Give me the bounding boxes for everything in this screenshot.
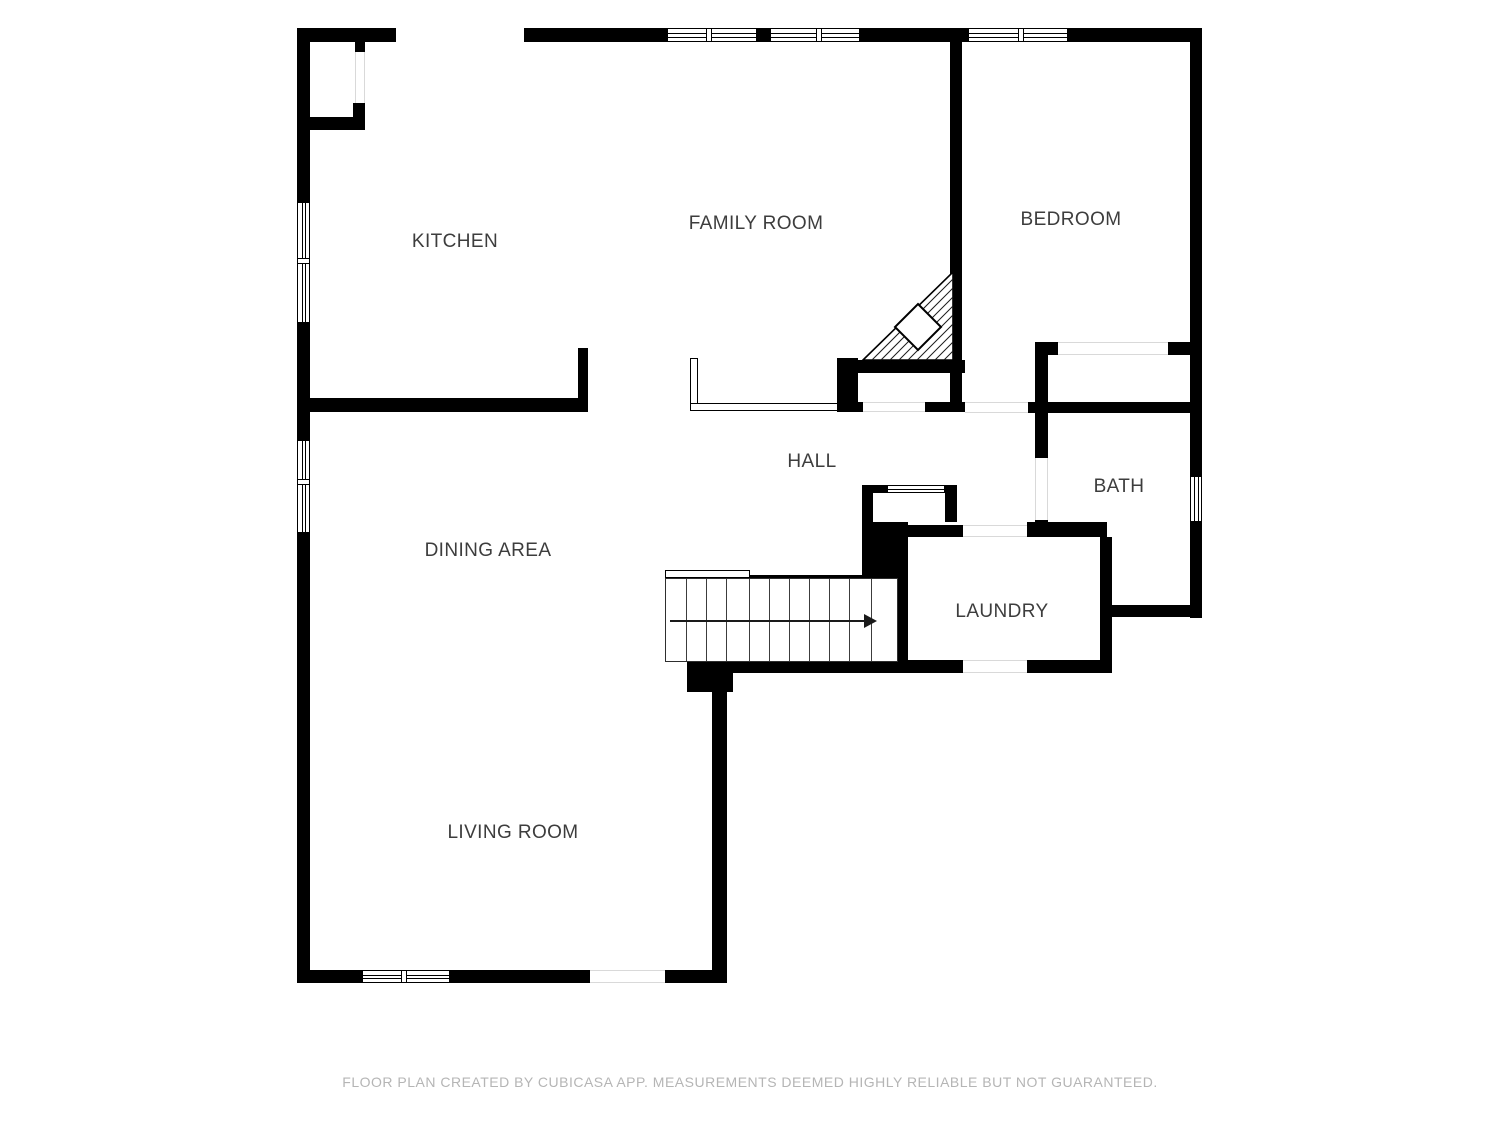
wall-segment	[297, 398, 588, 412]
wall-segment	[1028, 402, 1202, 413]
window	[297, 440, 310, 533]
wall-segment	[1027, 660, 1112, 673]
wall-segment	[353, 103, 365, 117]
window-pane-line	[305, 441, 306, 532]
wall-segment	[898, 537, 908, 662]
window	[770, 28, 860, 42]
window-pane-line	[668, 37, 756, 38]
floor-plan-canvas: KITCHENFAMILY ROOMBEDROOMHALLBATHDINING …	[0, 0, 1500, 1125]
wall-segment	[757, 28, 770, 42]
window-mullion	[706, 29, 712, 41]
door-opening	[590, 970, 665, 983]
window-mullion	[298, 479, 309, 485]
wall-segment	[898, 525, 963, 537]
door-opening	[963, 660, 1027, 673]
wall-segment	[450, 970, 590, 983]
wall-segment	[524, 28, 667, 42]
door-opening	[355, 52, 365, 103]
door-opening	[965, 402, 1028, 413]
wall-segment	[1108, 605, 1202, 617]
wall-segment	[945, 485, 957, 493]
stair-direction-arrow	[670, 620, 864, 622]
door-opening	[1035, 458, 1048, 520]
room-label-hall: HALL	[787, 451, 836, 473]
railing-half-wall	[690, 403, 838, 411]
room-label-bath: BATH	[1094, 476, 1145, 498]
wall-segment	[945, 493, 957, 522]
wall-segment	[1027, 522, 1107, 537]
window-pane-line	[1198, 477, 1199, 521]
room-label-dining-area: DINING AREA	[425, 540, 552, 562]
window	[297, 202, 310, 323]
floor-plan-page: KITCHENFAMILY ROOMBEDROOMHALLBATHDINING …	[0, 0, 1500, 1125]
window-pane-line	[668, 33, 756, 34]
wall-segment	[297, 970, 362, 983]
door-opening	[963, 525, 1027, 537]
window-pane-line	[888, 489, 944, 490]
window	[362, 970, 450, 983]
railing-half-wall	[665, 570, 750, 578]
wall-segment	[1168, 342, 1192, 355]
wall-segment	[862, 485, 887, 493]
winder-stairs	[850, 260, 970, 370]
wall-segment	[1190, 522, 1202, 618]
window	[667, 28, 757, 42]
wall-segment	[297, 323, 310, 440]
wall-segment	[925, 402, 967, 412]
wall-segment	[665, 970, 727, 983]
window-pane-line	[302, 441, 303, 532]
room-label-living-room: LIVING ROOM	[447, 822, 578, 844]
window-pane-line	[771, 33, 859, 34]
wall-segment	[1035, 342, 1048, 458]
window-mullion	[298, 258, 309, 264]
wall-segment	[687, 662, 733, 692]
window	[968, 28, 1068, 42]
room-label-bedroom: BEDROOM	[1021, 209, 1122, 231]
staircase	[665, 578, 898, 662]
wall-segment	[355, 42, 365, 52]
door-opening	[1058, 342, 1168, 355]
room-label-family-room: FAMILY ROOM	[689, 213, 824, 235]
stair-arrow-head	[864, 614, 877, 628]
window-mullion	[816, 29, 822, 41]
window	[887, 485, 945, 493]
wall-segment	[297, 533, 310, 983]
wall-segment	[310, 117, 365, 130]
wall-segment	[712, 690, 727, 983]
wall-segment	[297, 28, 396, 42]
disclaimer-text: FLOOR PLAN CREATED BY CUBICASA APP. MEAS…	[0, 1074, 1500, 1090]
room-label-laundry: LAUNDRY	[955, 601, 1048, 623]
wall-segment	[1068, 28, 1202, 42]
window-mullion	[1018, 29, 1024, 41]
window-pane-line	[1194, 477, 1195, 521]
door-opening	[863, 402, 925, 412]
wall-segment	[578, 348, 588, 412]
window	[1190, 476, 1202, 522]
wall-segment	[297, 28, 310, 202]
wall-segment	[837, 402, 865, 412]
room-label-kitchen: KITCHEN	[412, 231, 498, 253]
window-mullion	[401, 971, 407, 982]
window-pane-line	[771, 37, 859, 38]
